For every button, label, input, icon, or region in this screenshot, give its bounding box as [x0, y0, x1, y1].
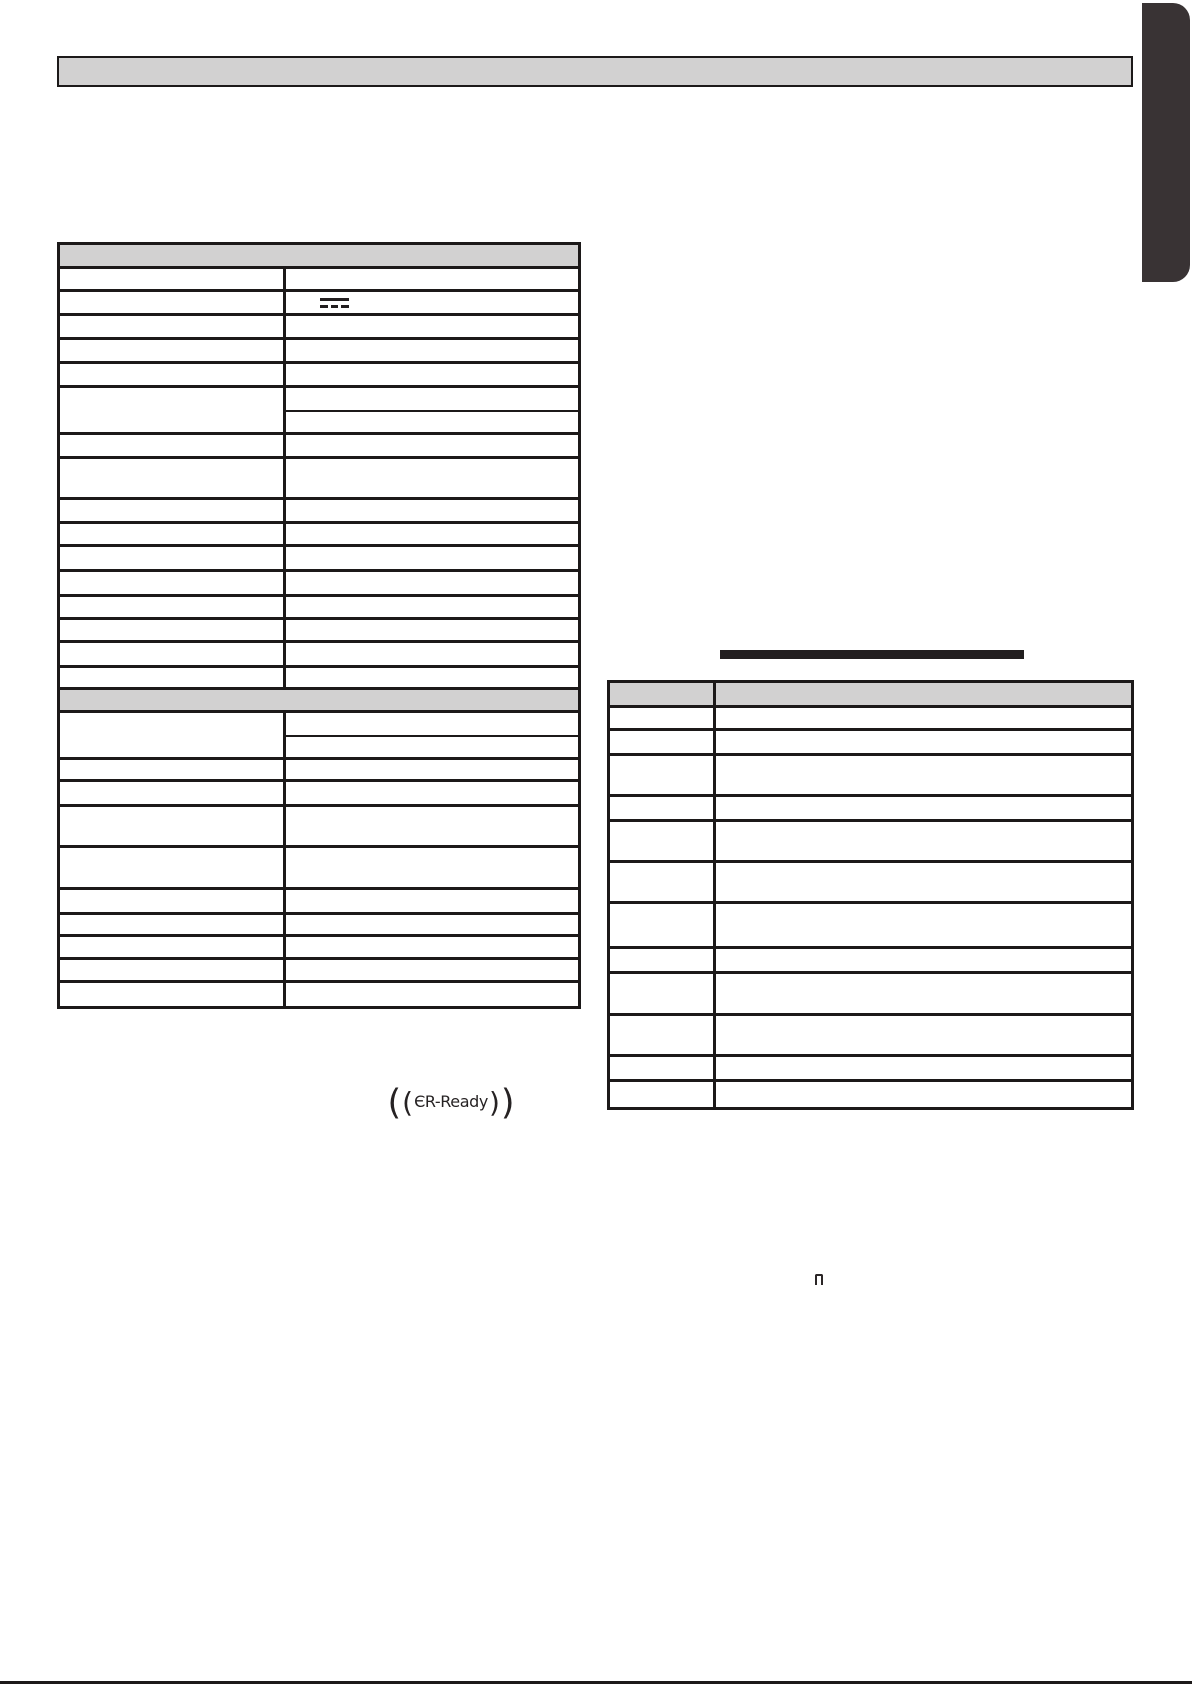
label-cell — [60, 807, 286, 845]
table-row — [60, 388, 578, 435]
table-row — [60, 597, 578, 620]
value-cell — [286, 983, 578, 1006]
label-cell — [60, 890, 286, 912]
table-row — [610, 949, 1131, 974]
table-row — [610, 863, 1131, 904]
value-subcell — [286, 388, 578, 412]
table-row — [610, 708, 1131, 731]
table-row — [60, 668, 578, 690]
value-cell — [286, 937, 578, 957]
value-cell — [286, 807, 578, 845]
label-cell — [60, 340, 286, 361]
label-cell — [610, 949, 716, 971]
table-row — [60, 760, 578, 782]
value-cell — [286, 643, 578, 665]
value-cell — [286, 316, 578, 337]
label-cell — [60, 597, 286, 617]
value-cell — [286, 269, 578, 289]
value-cell — [716, 708, 1131, 728]
logo-outer-close-paren: ) — [501, 1082, 515, 1124]
seven-segment-n-icon — [815, 1274, 823, 1285]
table-row — [60, 500, 578, 524]
logo-outer-open-paren: ( — [387, 1082, 401, 1124]
table-row — [610, 756, 1131, 797]
label-cell — [60, 316, 286, 337]
label-cell — [610, 1016, 716, 1054]
label-cell — [610, 822, 716, 860]
label-cell — [60, 388, 286, 432]
label-cell — [610, 1082, 716, 1107]
table-row — [60, 340, 578, 364]
label-cell — [60, 937, 286, 957]
table-row — [60, 269, 578, 292]
table-row — [60, 435, 578, 459]
table-row — [60, 983, 578, 1006]
page-edge-tab — [1142, 3, 1190, 282]
logo-inner-close-paren: ) — [488, 1082, 501, 1124]
value-cell — [286, 500, 578, 521]
table-row — [60, 316, 578, 340]
table-row — [610, 1016, 1131, 1057]
label-cell — [610, 797, 716, 819]
page-title-banner — [57, 56, 1133, 87]
value-cell — [286, 597, 578, 617]
table-row — [60, 915, 578, 937]
value-cell — [716, 822, 1131, 860]
value-cell — [286, 890, 578, 912]
table-row — [60, 807, 578, 848]
label-cell — [60, 915, 286, 934]
value-cell — [716, 797, 1131, 819]
value-cell — [286, 915, 578, 934]
value-cell — [716, 863, 1131, 901]
label-cell — [60, 435, 286, 456]
section-header-row — [60, 690, 578, 713]
value-cell — [286, 435, 578, 456]
table-row — [610, 797, 1131, 822]
table-row — [60, 782, 578, 807]
section-heading-bar — [720, 650, 1024, 659]
value-cell — [286, 620, 578, 640]
label-cell — [60, 643, 286, 665]
table-row — [610, 731, 1131, 756]
label-cell — [60, 500, 286, 521]
value-cell — [286, 459, 578, 497]
table-row — [610, 822, 1131, 863]
table-row — [60, 547, 578, 572]
table-row — [60, 937, 578, 960]
label-cell — [610, 863, 716, 901]
value-cell — [716, 949, 1131, 971]
value-cell — [716, 1057, 1131, 1079]
value-cell — [286, 782, 578, 804]
value-cell — [716, 756, 1131, 794]
table-row — [60, 364, 578, 388]
table-row — [610, 904, 1131, 949]
value-cell — [286, 524, 578, 544]
info-codes-table — [607, 680, 1134, 1110]
value-cell — [286, 960, 578, 980]
label-cell — [60, 760, 286, 779]
label-cell — [60, 983, 286, 1006]
label-cell — [60, 524, 286, 544]
value-subcell — [286, 412, 578, 432]
value-cell — [286, 340, 578, 361]
table-row — [610, 974, 1131, 1016]
value-cell — [286, 388, 578, 432]
table-row — [60, 459, 578, 500]
table-row — [610, 1057, 1131, 1082]
table-row — [60, 572, 578, 597]
table-row — [610, 1082, 1131, 1107]
table-row — [60, 643, 578, 668]
label-cell — [60, 782, 286, 804]
label-cell — [610, 683, 716, 705]
table-row — [60, 848, 578, 890]
label-cell — [60, 620, 286, 640]
label-cell — [60, 848, 286, 887]
section-header-row — [60, 245, 578, 269]
value-cell — [286, 547, 578, 569]
label-cell — [610, 1057, 716, 1079]
label-cell — [60, 572, 286, 594]
value-cell — [286, 713, 578, 757]
value-cell — [286, 760, 578, 779]
label-cell — [60, 960, 286, 980]
label-cell — [60, 713, 286, 757]
value-cell — [716, 1016, 1131, 1054]
table-row — [60, 960, 578, 983]
value-cell — [286, 848, 578, 887]
value-cell — [286, 364, 578, 385]
logo-text: ЄR-Ready — [414, 1081, 488, 1123]
label-cell — [60, 668, 286, 687]
value-cell — [716, 974, 1131, 1013]
table-row — [60, 620, 578, 643]
value-cell — [716, 904, 1131, 946]
footer-rule — [0, 1681, 1192, 1684]
table-row — [60, 292, 578, 316]
specifications-table — [57, 242, 581, 1009]
value-subcell — [286, 737, 578, 757]
label-cell — [610, 904, 716, 946]
logo-inner-open-paren: ( — [401, 1082, 414, 1124]
label-cell — [60, 364, 286, 385]
label-cell — [610, 974, 716, 1013]
value-cell — [286, 572, 578, 594]
value-cell — [716, 731, 1131, 753]
table-row — [60, 890, 578, 915]
column-header-row — [610, 683, 1131, 708]
label-cell — [60, 269, 286, 289]
label-cell — [610, 756, 716, 794]
dc-current-icon — [320, 298, 349, 308]
er-ready-logo: ( ( ЄR-Ready ) ) — [398, 1082, 504, 1124]
label-cell — [610, 708, 716, 728]
label-cell — [60, 292, 286, 313]
value-cell — [716, 683, 1131, 705]
value-cell — [286, 292, 578, 313]
table-row — [60, 713, 578, 760]
value-cell — [286, 668, 578, 687]
value-subcell — [286, 713, 578, 737]
label-cell — [610, 731, 716, 753]
table-row — [60, 524, 578, 547]
label-cell — [60, 459, 286, 497]
value-cell — [716, 1082, 1131, 1107]
label-cell — [60, 547, 286, 569]
